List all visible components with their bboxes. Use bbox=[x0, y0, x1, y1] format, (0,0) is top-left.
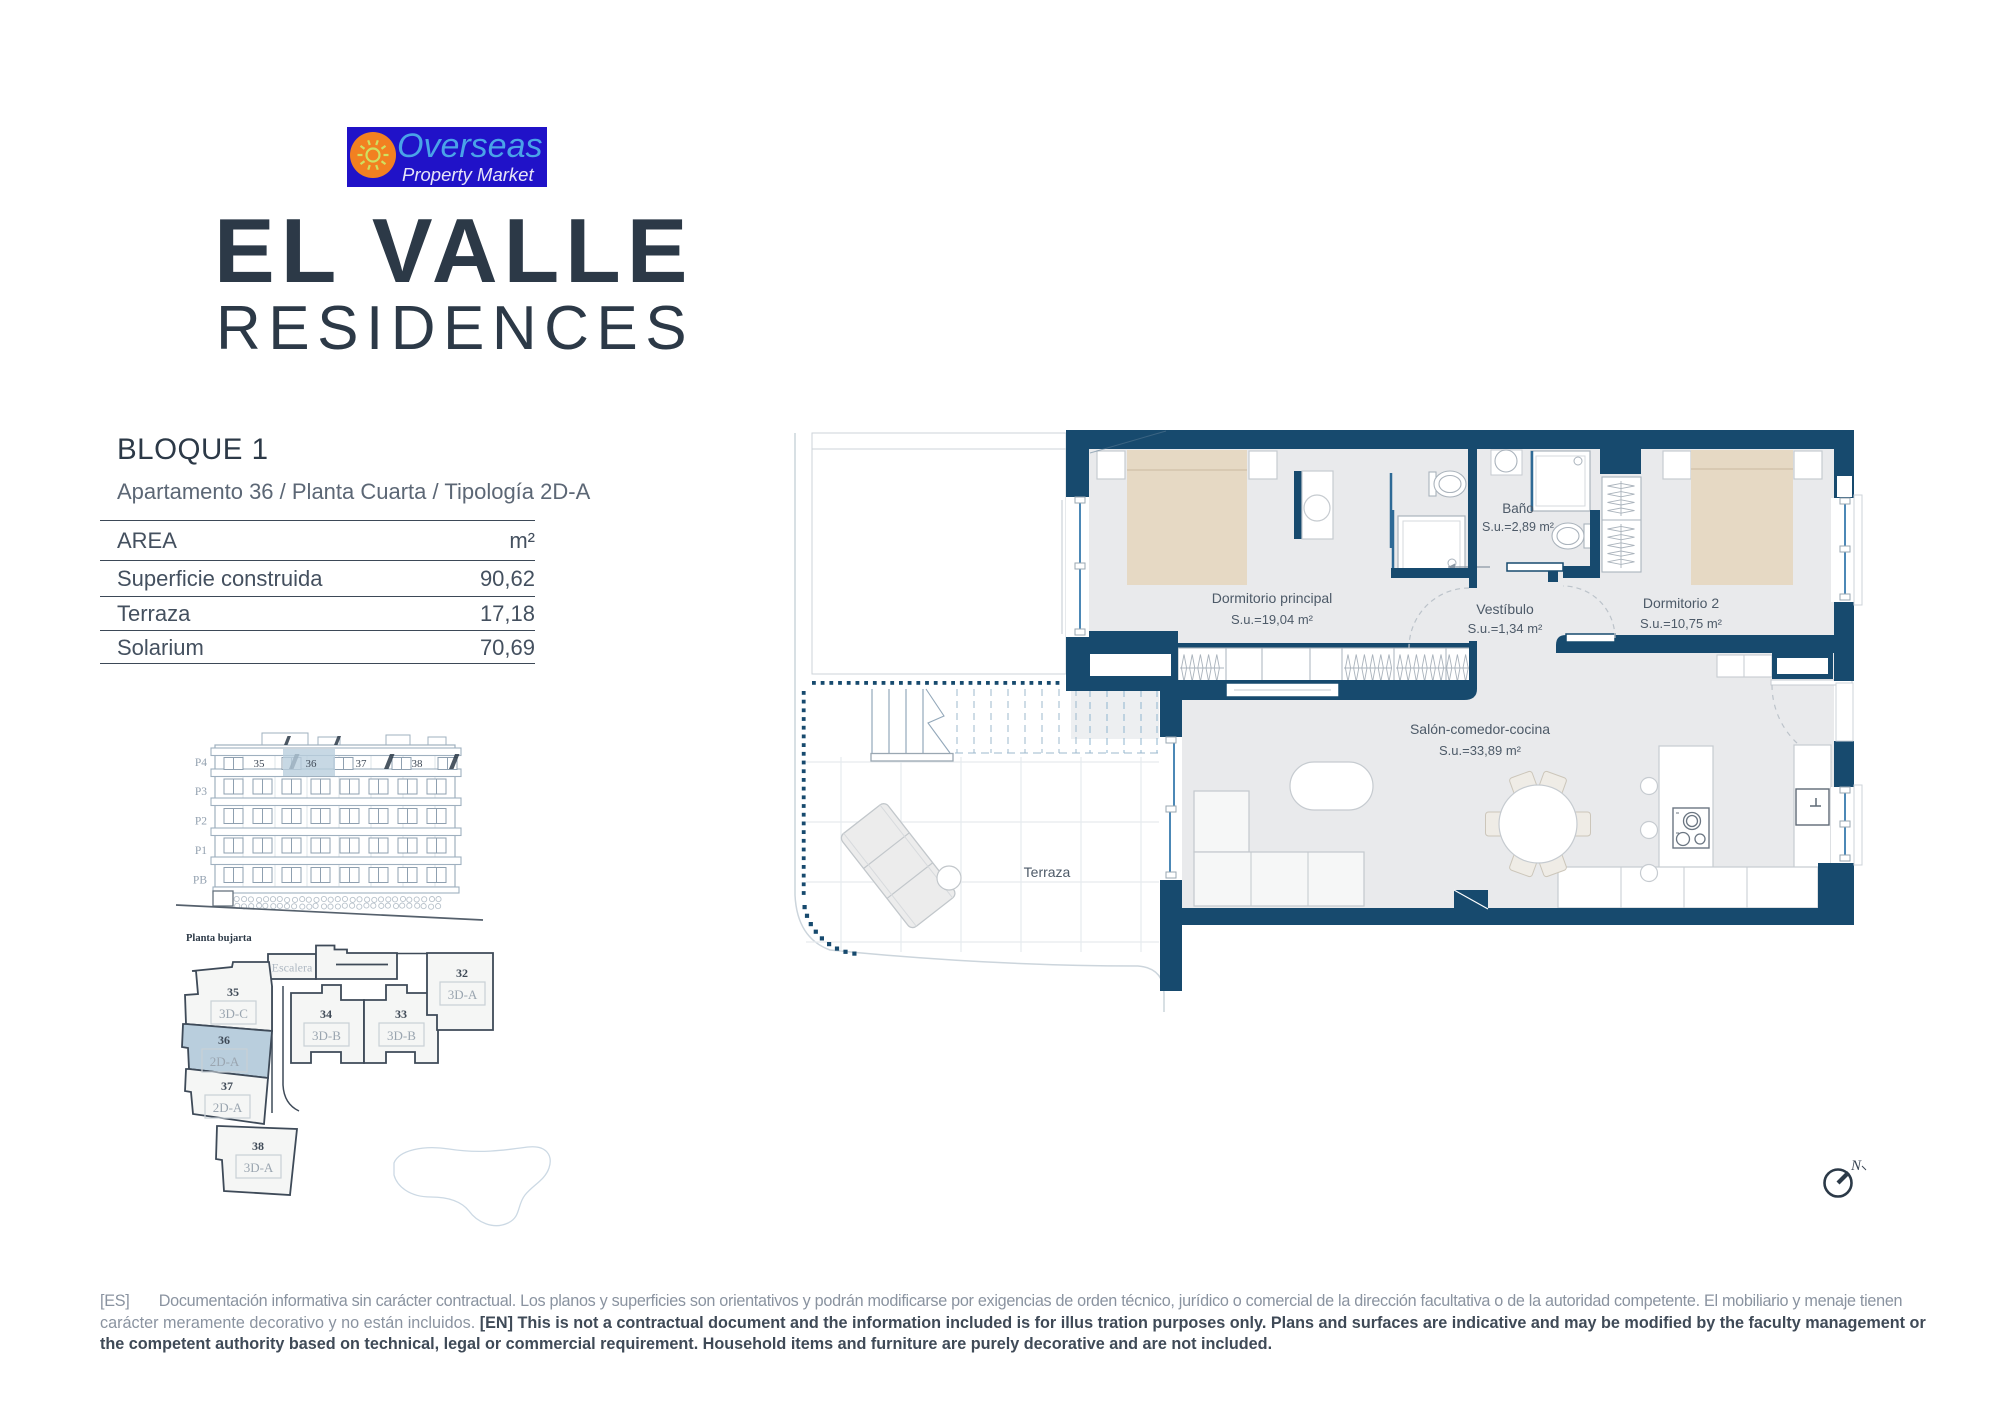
svg-text:Dormitorio principal: Dormitorio principal bbox=[1212, 590, 1333, 606]
svg-text:2D-A: 2D-A bbox=[210, 1054, 240, 1069]
svg-text:3D-A: 3D-A bbox=[244, 1160, 274, 1175]
svg-text:2D-A: 2D-A bbox=[213, 1100, 243, 1115]
svg-text:35: 35 bbox=[227, 985, 239, 999]
svg-text:36: 36 bbox=[306, 758, 318, 770]
svg-text:S.u.=2,89 m²: S.u.=2,89 m² bbox=[1482, 520, 1554, 534]
svg-text:S.u.=1,34 m²: S.u.=1,34 m² bbox=[1468, 621, 1543, 636]
svg-text:Baño: Baño bbox=[1502, 501, 1534, 516]
svg-text:P3: P3 bbox=[195, 786, 207, 798]
svg-text:Salón-comedor-cocina: Salón-comedor-cocina bbox=[1410, 721, 1550, 737]
svg-text:3D-B: 3D-B bbox=[387, 1028, 416, 1043]
svg-text:S.u.=10,75 m²: S.u.=10,75 m² bbox=[1640, 616, 1723, 631]
svg-text:Terraza: Terraza bbox=[1024, 864, 1071, 880]
svg-text:S.u.=19,04 m²: S.u.=19,04 m² bbox=[1231, 612, 1314, 627]
svg-text:S.u.=33,89 m²: S.u.=33,89 m² bbox=[1439, 743, 1522, 758]
svg-text:P1: P1 bbox=[195, 845, 207, 857]
svg-text:33: 33 bbox=[395, 1007, 407, 1021]
svg-text:37: 37 bbox=[356, 758, 368, 770]
svg-text:PB: PB bbox=[193, 875, 207, 887]
svg-text:38: 38 bbox=[412, 758, 424, 770]
svg-text:36: 36 bbox=[218, 1033, 230, 1047]
svg-text:Dormitorio 2: Dormitorio 2 bbox=[1643, 595, 1719, 611]
svg-text:32: 32 bbox=[456, 966, 468, 980]
svg-text:P4: P4 bbox=[195, 757, 207, 769]
svg-text:35: 35 bbox=[254, 758, 266, 770]
svg-text:3D-A: 3D-A bbox=[448, 987, 478, 1002]
svg-text:3D-C: 3D-C bbox=[219, 1006, 248, 1021]
svg-text:Escalera: Escalera bbox=[272, 961, 313, 975]
svg-text:Planta bujarta: Planta bujarta bbox=[186, 933, 252, 944]
svg-text:38: 38 bbox=[252, 1139, 264, 1153]
svg-text:N: N bbox=[1850, 1158, 1862, 1174]
svg-text:Vestíbulo: Vestíbulo bbox=[1476, 601, 1534, 617]
svg-text:P2: P2 bbox=[195, 816, 207, 828]
svg-text:34: 34 bbox=[320, 1007, 332, 1021]
svg-text:3D-B: 3D-B bbox=[312, 1028, 341, 1043]
svg-text:37: 37 bbox=[221, 1079, 233, 1093]
